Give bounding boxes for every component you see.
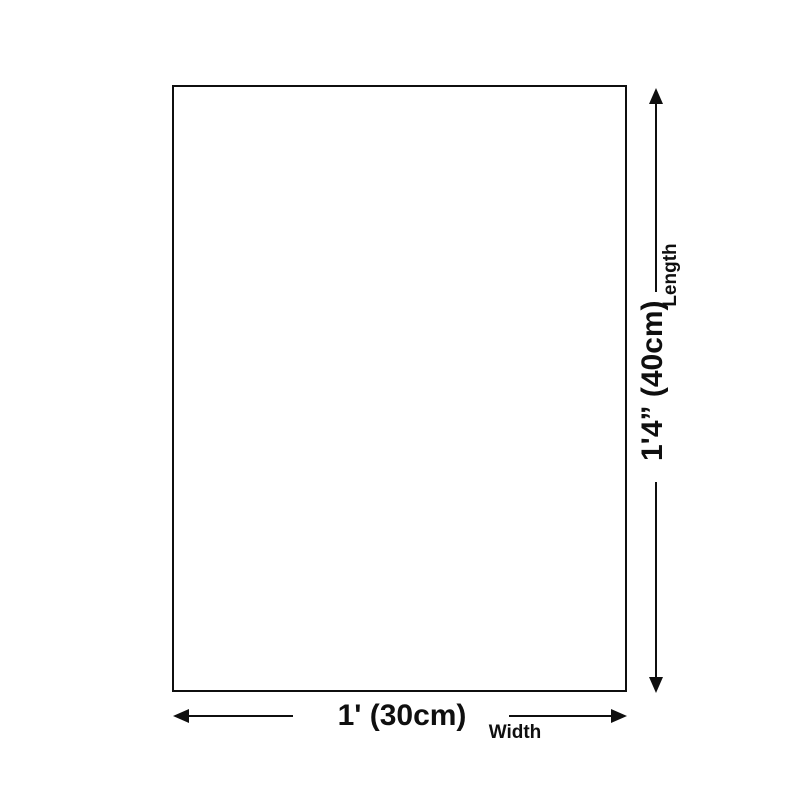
- length-dimension-line-top: [655, 100, 658, 292]
- size-diagram: 1'4” (40cm) Length 1' (30cm) Width: [0, 0, 800, 800]
- width-dimension-line-left: [185, 715, 293, 718]
- length-dimension-label: Length: [661, 238, 681, 312]
- product-outline-rectangle: [172, 85, 627, 692]
- arrow-down-icon: [649, 677, 663, 693]
- width-dimension-label: Width: [465, 723, 565, 743]
- width-dimension-line-right: [509, 715, 613, 718]
- length-dimension-value: 1'4” (40cm): [637, 311, 669, 461]
- length-dimension-line-bottom: [655, 482, 658, 679]
- arrow-right-icon: [611, 709, 627, 723]
